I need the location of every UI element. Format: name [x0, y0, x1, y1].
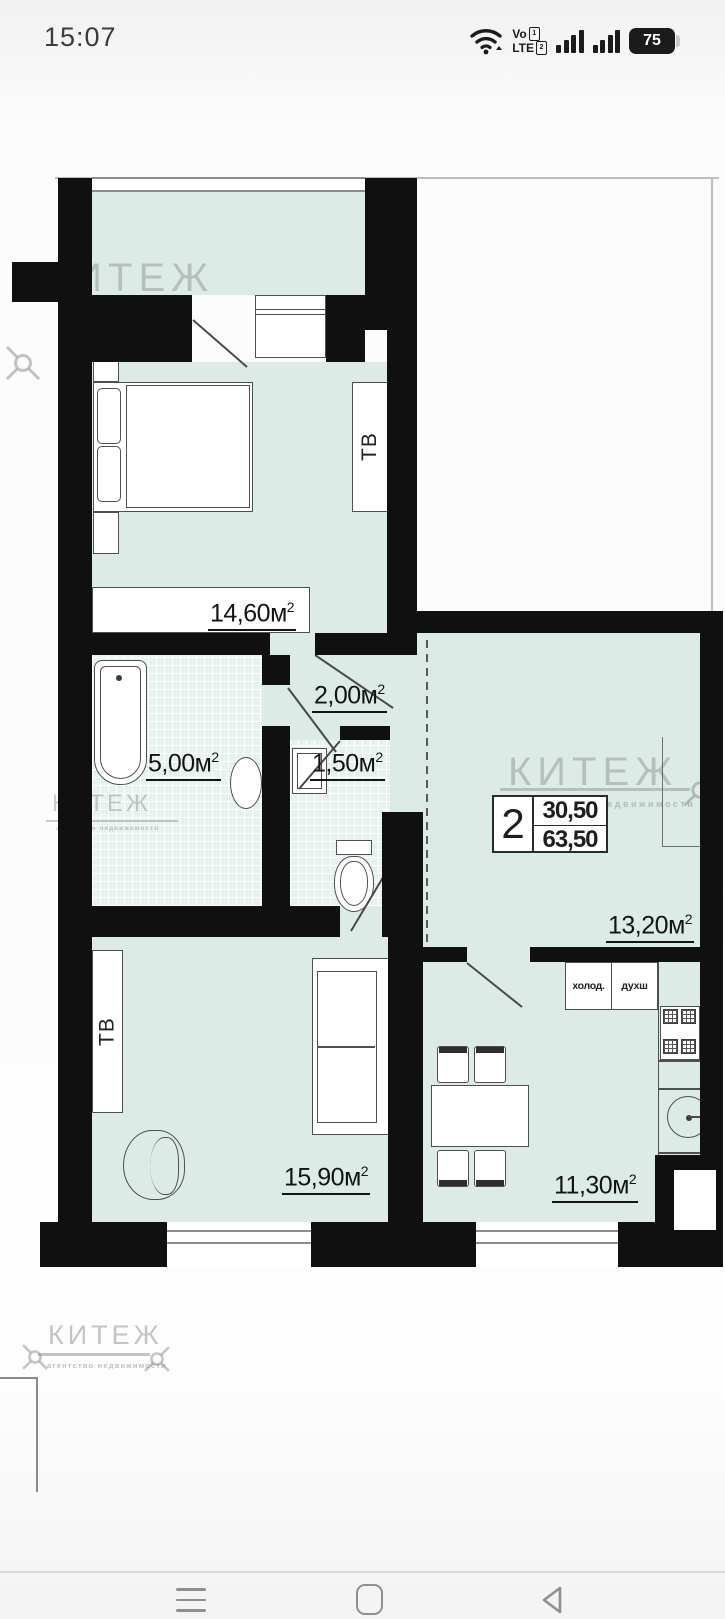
bathroom-area-label: 5,00м2 — [146, 750, 221, 781]
wall-left-stub — [12, 262, 58, 302]
living-area-label: 15,90м2 — [282, 1164, 370, 1195]
hallway-area-label: 2,00м2 — [312, 682, 387, 713]
balcony-window — [92, 177, 365, 192]
wall-living-top — [58, 906, 340, 937]
living-area-value: 30,50 — [534, 797, 606, 826]
living-window — [167, 1222, 311, 1267]
nav-divider — [0, 1571, 725, 1573]
dining-door-swing — [467, 963, 522, 1007]
bedroom-area-label: 14,60м2 — [208, 600, 296, 631]
dining-area-label: 11,30м2 — [552, 1172, 638, 1203]
wall-bedroom-right — [387, 295, 417, 655]
recents-button[interactable] — [176, 1588, 206, 1612]
wall-balcony-row-left — [58, 295, 192, 362]
home-icon — [356, 1584, 383, 1615]
wall-bedroom-bottom-right — [315, 633, 417, 655]
vent-shaft — [674, 1170, 716, 1230]
wall-wc-right-chunk — [382, 812, 423, 937]
wall-bottom-left — [40, 1222, 167, 1267]
wall-bigroom-top — [387, 611, 723, 633]
home-button[interactable] — [356, 1584, 383, 1615]
apartment-info-box: 2 30,50 63,50 — [492, 795, 608, 853]
wall-bath-partition — [262, 726, 290, 906]
wall-bottom-middle — [311, 1222, 476, 1267]
total-area-value: 63,50 — [534, 826, 606, 854]
dining-window — [476, 1222, 618, 1267]
kitchen-living-area-label: 13,20м2 — [606, 912, 694, 943]
phone-screen: 15:07 Vo1 LTE2 75 — [0, 0, 725, 1619]
wall-wc-top-stub — [340, 726, 390, 740]
back-icon — [536, 1584, 566, 1616]
back-button[interactable] — [536, 1584, 566, 1619]
wall-kitchen-bar — [530, 947, 700, 962]
plan-lines-overlay — [0, 0, 725, 1619]
wall-bath-stub — [262, 655, 290, 685]
wall-balcony-row-right — [326, 295, 365, 362]
room-count: 2 — [494, 797, 534, 851]
wall-bedroom-bottom-left — [58, 633, 270, 655]
wc-area-label: 1,50м2 — [310, 750, 385, 781]
wall-kitchen-stub — [423, 947, 467, 962]
floorplan-image[interactable]: КИТЕЖ КИТЕЖ агентство недвижимости КИТЕЖ… — [0, 0, 725, 1619]
wall-living-dining-partition — [388, 937, 423, 1222]
balcony-door-swing — [193, 320, 247, 367]
